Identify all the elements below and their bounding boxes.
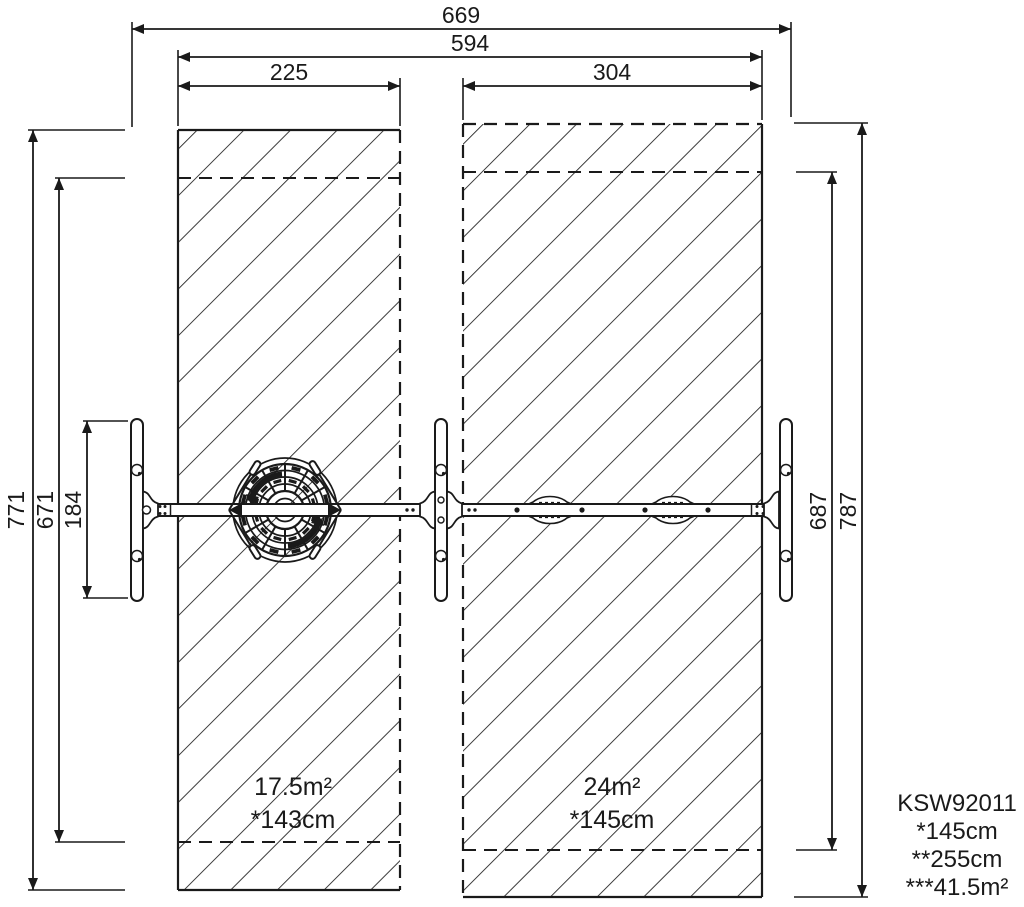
dim-label-safety-zone-width: 594 bbox=[451, 30, 490, 56]
junction-bell-middle-right bbox=[447, 492, 462, 529]
technical-drawing-page: 669 594 225 304 771 671 184 687 787 17.5… bbox=[0, 0, 1024, 907]
right-zone-area-label: 24m² bbox=[584, 773, 641, 801]
swing-set-plan-drawing: 669 594 225 304 771 671 184 687 787 17.5… bbox=[0, 0, 1024, 907]
dim-label-total-width: 669 bbox=[442, 2, 480, 28]
product-legend: KSW92011 *145cm **255cm ***41.5m² bbox=[897, 790, 1017, 901]
right-zone-fall-height-label: *145cm bbox=[570, 806, 655, 834]
legend-beam-height: **255cm bbox=[912, 846, 1003, 873]
product-code-label: KSW92011 bbox=[897, 790, 1017, 817]
junction-notch bbox=[438, 497, 444, 503]
legend-swing-height: *145cm bbox=[916, 818, 997, 845]
post-right bbox=[780, 419, 792, 601]
dim-label-right-inner-height: 687 bbox=[805, 492, 831, 530]
junction-bell-right bbox=[764, 492, 779, 529]
left-zone-fall-height-label: *143cm bbox=[251, 806, 336, 834]
dim-label-left-inner-height: 671 bbox=[32, 491, 58, 529]
junction-notch bbox=[143, 506, 151, 514]
dim-label-frame-footprint: 184 bbox=[60, 491, 86, 530]
post-middle bbox=[435, 419, 447, 601]
dim-label-left-zone-width: 225 bbox=[270, 59, 308, 85]
dim-label-right-zone-height: 787 bbox=[835, 492, 861, 530]
dim-label-left-zone-height: 771 bbox=[3, 491, 29, 529]
dim-label-right-zone-width: 304 bbox=[593, 59, 632, 85]
left-zone-area-label: 17.5m² bbox=[254, 773, 332, 801]
post-left bbox=[131, 419, 143, 601]
junction-bell-middle-left bbox=[420, 492, 435, 529]
legend-total-area: ***41.5m² bbox=[906, 874, 1009, 901]
junction-notch bbox=[438, 517, 444, 523]
